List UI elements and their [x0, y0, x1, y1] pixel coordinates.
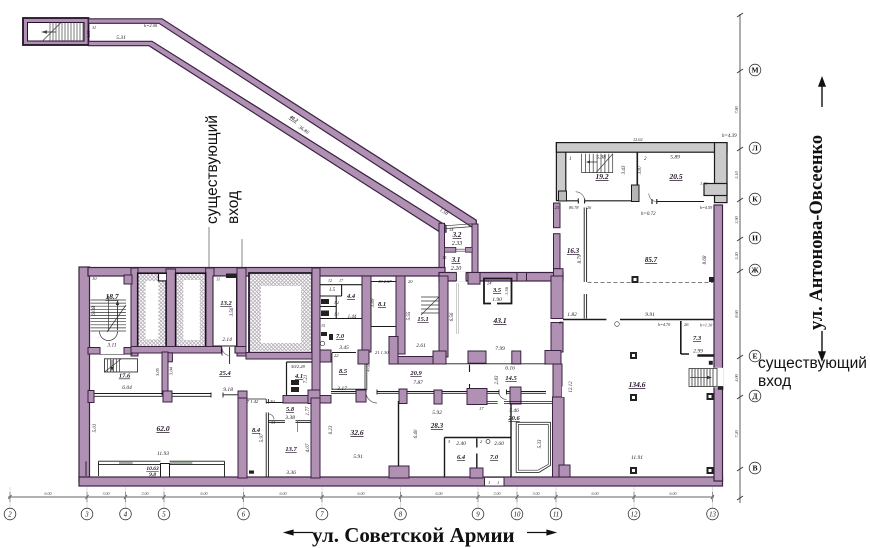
svg-text:2.60: 2.60	[494, 441, 504, 447]
svg-text:3.38: 3.38	[284, 415, 295, 421]
svg-text:10: 10	[92, 276, 97, 281]
svg-text:h=0.72: h=0.72	[641, 212, 656, 217]
svg-text:7 1.42: 7 1.42	[247, 399, 259, 404]
svg-text:5.31: 5.31	[116, 35, 126, 41]
svg-text:13: 13	[709, 512, 716, 519]
svg-text:3.11: 3.11	[106, 343, 116, 349]
svg-text:3.87: 3.87	[638, 165, 643, 174]
svg-text:h=4.70: h=4.70	[658, 322, 671, 327]
svg-text:h=1.10: h=1.10	[700, 323, 713, 328]
svg-text:3.89: 3.89	[371, 298, 376, 307]
svg-text:1.50: 1.50	[86, 29, 91, 37]
svg-text:3.5: 3.5	[492, 287, 502, 294]
svg-text:7.3: 7.3	[693, 335, 702, 342]
svg-text:7.87: 7.87	[413, 380, 423, 386]
svg-text:h=2.00: h=2.00	[144, 23, 158, 28]
svg-text:1.77: 1.77	[306, 406, 311, 415]
svg-text:Е: Е	[752, 352, 757, 361]
svg-text:3.56: 3.56	[230, 307, 235, 316]
svg-text:6: 6	[242, 512, 246, 519]
svg-text:3.04: 3.04	[169, 366, 174, 375]
svg-text:43.1: 43.1	[492, 316, 506, 325]
svg-text:2.61: 2.61	[416, 343, 426, 349]
svg-text:21 1.30: 21 1.30	[375, 350, 389, 355]
svg-text:7.99: 7.99	[495, 346, 505, 352]
svg-text:2: 2	[8, 512, 12, 519]
svg-text:8.5: 8.5	[339, 368, 348, 375]
svg-text:25: 25	[555, 205, 559, 210]
svg-text:5.46: 5.46	[509, 407, 519, 414]
svg-text:12.12: 12.12	[569, 381, 574, 393]
svg-text:Д: Д	[752, 392, 758, 401]
svg-text:2.99: 2.99	[693, 349, 703, 355]
svg-text:В: В	[752, 464, 757, 473]
svg-text:5.89: 5.89	[670, 155, 680, 161]
svg-text:2.14: 2.14	[222, 336, 232, 343]
svg-text:6.00: 6.00	[436, 491, 443, 496]
svg-text:62.0: 62.0	[156, 424, 169, 433]
svg-text:5.97: 5.97	[260, 433, 265, 442]
svg-text:6.23: 6.23	[329, 425, 334, 434]
svg-text:30: 30	[270, 399, 275, 404]
svg-text:2.33: 2.33	[452, 241, 463, 247]
svg-text:11: 11	[216, 277, 220, 282]
svg-text:5.91: 5.91	[353, 454, 363, 460]
svg-text:3.45: 3.45	[338, 344, 349, 351]
svg-text:8.68: 8.68	[703, 255, 708, 264]
svg-text:12: 12	[631, 512, 638, 519]
svg-text:17: 17	[479, 406, 484, 411]
svg-text:22: 22	[334, 353, 339, 358]
svg-text:50/2.28: 50/2.28	[291, 364, 305, 369]
svg-text:85.7: 85.7	[645, 256, 658, 264]
svg-text:7.0: 7.0	[336, 333, 345, 340]
svg-text:6.16: 6.16	[505, 366, 515, 372]
svg-text:2.40: 2.40	[456, 440, 466, 447]
svg-text:6.00: 6.00	[358, 491, 365, 496]
svg-text:3.00: 3.00	[494, 491, 501, 496]
svg-text:12.02: 12.02	[633, 137, 642, 142]
svg-text:6.00: 6.00	[45, 491, 52, 496]
svg-text:3.1: 3.1	[451, 256, 461, 264]
svg-text:7.20: 7.20	[734, 429, 739, 437]
svg-text:1.56: 1.56	[504, 286, 509, 295]
svg-text:3.43: 3.43	[622, 165, 627, 174]
svg-text:2.20: 2.20	[451, 266, 462, 272]
svg-text:12: 12	[328, 278, 332, 283]
svg-text:3.00: 3.00	[103, 491, 110, 496]
svg-text:5.55: 5.55	[407, 311, 412, 320]
svg-text:h=4.59: h=4.59	[700, 205, 713, 210]
svg-text:7.21: 7.21	[304, 375, 309, 384]
svg-text:16.3: 16.3	[567, 247, 580, 255]
svg-text:3.2: 3.2	[452, 231, 462, 239]
svg-text:3: 3	[84, 512, 89, 519]
svg-text:26: 26	[684, 322, 689, 327]
svg-text:134.6: 134.6	[629, 380, 646, 389]
svg-text:Ж: Ж	[751, 266, 759, 275]
svg-text:8: 8	[399, 512, 403, 519]
svg-text:Л: Л	[752, 144, 758, 153]
svg-text:3.00: 3.00	[533, 491, 540, 496]
svg-text:6.00: 6.00	[280, 491, 287, 496]
svg-text:8.60: 8.60	[734, 309, 739, 317]
svg-text:5.33: 5.33	[538, 439, 543, 448]
svg-text:4.07: 4.07	[306, 443, 311, 452]
svg-text:1.82: 1.82	[567, 312, 577, 318]
svg-text:4.02: 4.02	[366, 364, 371, 371]
svg-text:3.05: 3.05	[155, 367, 160, 376]
svg-text:19 2.07: 19 2.07	[378, 279, 392, 284]
svg-text:11: 11	[92, 25, 96, 30]
svg-text:20: 20	[408, 279, 413, 284]
svg-text:9.91: 9.91	[645, 312, 655, 318]
svg-text:13.2: 13.2	[220, 300, 232, 307]
svg-text:4.00: 4.00	[734, 373, 739, 381]
svg-text:9: 9	[476, 512, 480, 519]
svg-text:19.2: 19.2	[595, 172, 608, 181]
svg-text:8.1: 8.1	[378, 301, 386, 308]
svg-text:6.40: 6.40	[414, 429, 419, 438]
svg-text:3.36: 3.36	[285, 470, 296, 476]
svg-text:2.83: 2.83	[495, 375, 500, 384]
svg-text:7: 7	[320, 512, 324, 519]
svg-text:5.8: 5.8	[286, 406, 295, 413]
svg-text:9.8: 9.8	[149, 472, 156, 478]
svg-text:15.1: 15.1	[417, 316, 428, 323]
svg-text:28.3: 28.3	[430, 422, 444, 430]
svg-text:15: 15	[321, 323, 325, 328]
svg-text:1: 1	[488, 480, 490, 485]
svg-text:6.04: 6.04	[122, 384, 132, 391]
svg-text:1.13: 1.13	[700, 181, 707, 186]
svg-text:4.4: 4.4	[346, 293, 356, 300]
svg-text:6.56: 6.56	[450, 312, 455, 321]
svg-text:3.90: 3.90	[734, 215, 739, 223]
svg-text:10: 10	[514, 512, 521, 519]
svg-text:20.6: 20.6	[507, 415, 520, 422]
svg-text:8.4: 8.4	[252, 427, 261, 434]
svg-text:8.79: 8.79	[578, 254, 583, 263]
svg-text:5.10: 5.10	[734, 170, 739, 178]
svg-text:20.5: 20.5	[668, 172, 682, 181]
svg-text:24: 24	[487, 281, 492, 286]
svg-text:6.00: 6.00	[670, 491, 677, 496]
svg-text:3.20: 3.20	[734, 251, 739, 259]
svg-text:1.2: 1.2	[334, 300, 339, 305]
svg-text:6.08: 6.08	[91, 306, 97, 316]
svg-text:11: 11	[553, 512, 559, 519]
svg-text:1.90: 1.90	[492, 297, 502, 303]
svg-text:3.00: 3.00	[142, 491, 149, 496]
svg-text:5.01: 5.01	[93, 424, 98, 433]
svg-text:h=4.39: h=4.39	[722, 134, 737, 139]
svg-text:4.1: 4.1	[294, 373, 303, 380]
svg-text:11.91: 11.91	[631, 455, 643, 461]
svg-text:32.6: 32.6	[349, 428, 363, 437]
svg-text:7.80: 7.80	[734, 105, 739, 113]
svg-text:1.44: 1.44	[348, 315, 357, 320]
svg-text:4: 4	[124, 512, 128, 519]
svg-text:5: 5	[162, 512, 166, 519]
svg-text:23: 23	[559, 320, 564, 325]
svg-text:6.00: 6.00	[592, 491, 599, 496]
svg-text:13.7: 13.7	[285, 446, 297, 453]
svg-text:1.5: 1.5	[329, 288, 336, 293]
svg-text:20.9: 20.9	[409, 370, 422, 377]
svg-text:1: 1	[497, 480, 499, 485]
svg-text:М: М	[751, 66, 758, 75]
svg-text:14: 14	[449, 227, 454, 232]
svg-text:1.1: 1.1	[334, 312, 339, 317]
svg-text:15: 15	[442, 255, 447, 260]
svg-text:7.0: 7.0	[490, 454, 499, 461]
svg-text:К: К	[752, 195, 758, 204]
svg-text:1: 1	[569, 157, 572, 162]
svg-text:25.4: 25.4	[218, 370, 231, 377]
svg-text:14.5: 14.5	[505, 375, 517, 382]
svg-text:9.18: 9.18	[223, 387, 233, 393]
svg-text:5.92: 5.92	[432, 410, 442, 416]
svg-text:80.78: 80.78	[569, 205, 579, 210]
svg-text:31: 31	[271, 420, 276, 425]
svg-text:6.4: 6.4	[457, 454, 466, 461]
svg-text:17.6: 17.6	[119, 373, 131, 380]
svg-text:11.93: 11.93	[157, 451, 169, 457]
svg-text:6.00: 6.00	[201, 491, 208, 496]
svg-text:И: И	[752, 234, 758, 243]
